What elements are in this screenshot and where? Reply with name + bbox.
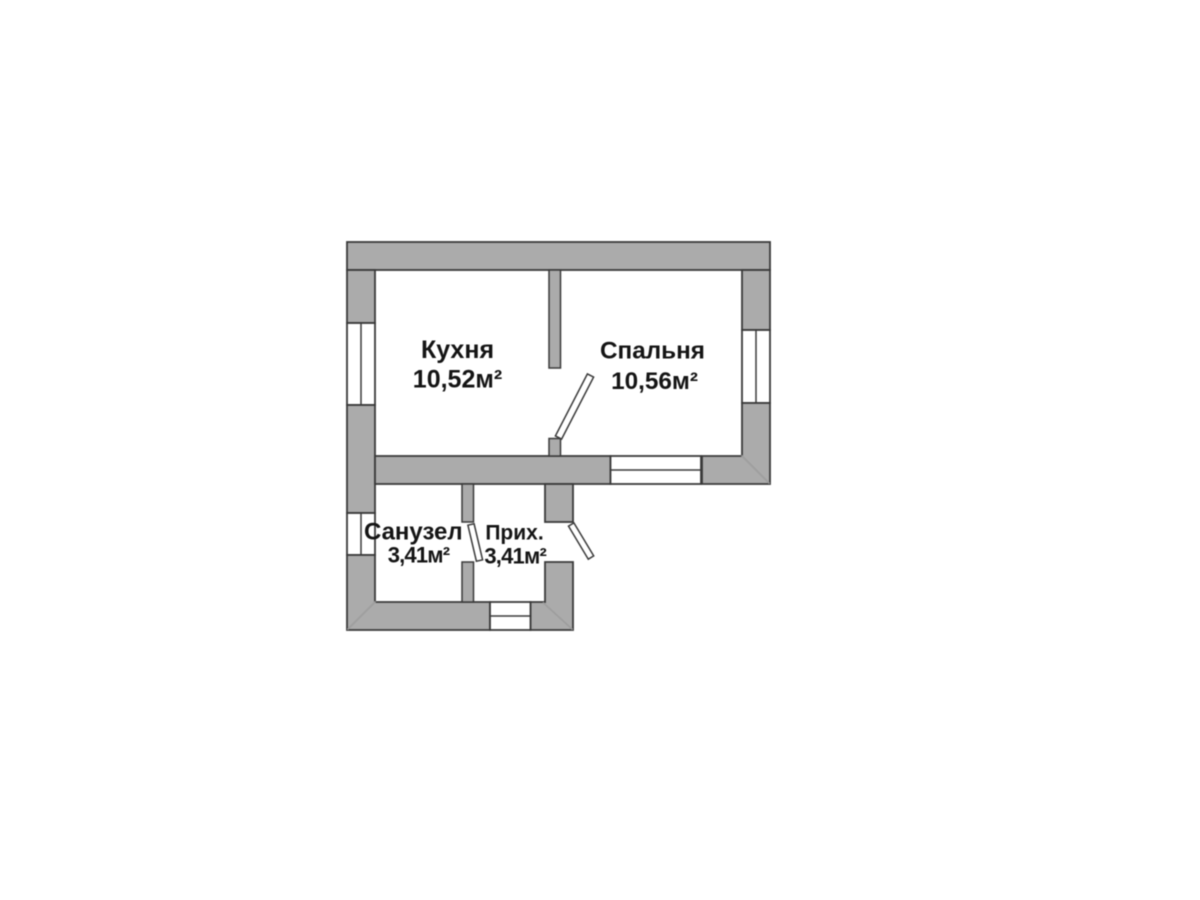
svg-text:Кухня: Кухня xyxy=(421,336,494,364)
svg-text:3,41м²: 3,41м² xyxy=(484,544,546,569)
svg-text:3,41м²: 3,41м² xyxy=(388,543,450,568)
svg-text:Санузел: Санузел xyxy=(364,519,463,546)
svg-text:10,52м²: 10,52м² xyxy=(413,366,502,394)
svg-text:10,56м²: 10,56м² xyxy=(611,368,698,395)
svg-text:Прих.: Прих. xyxy=(485,522,543,545)
svg-text:Спальня: Спальня xyxy=(600,338,705,365)
